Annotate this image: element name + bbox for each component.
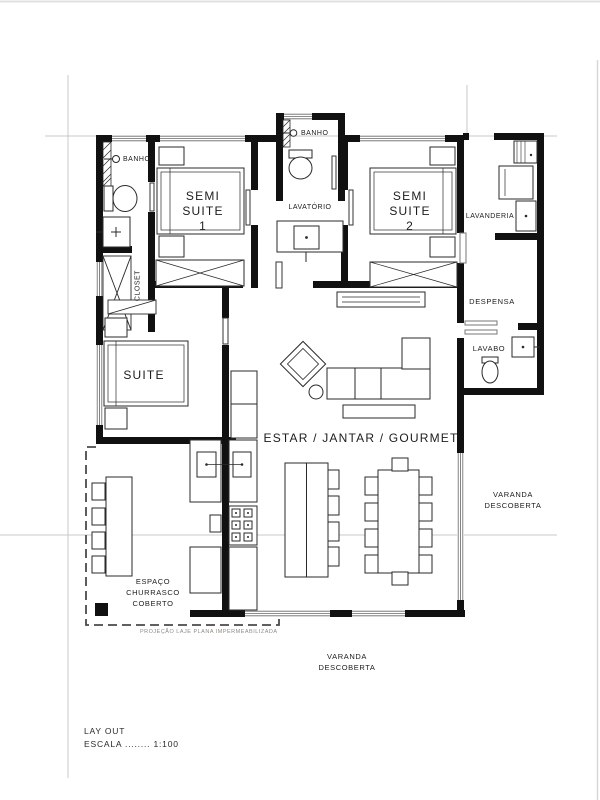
room-label-estar-jantar-gourmet: ESTAR / JANTAR / GOURMET	[261, 431, 461, 446]
washing-machine-icon	[499, 166, 533, 199]
chair-icon	[365, 477, 378, 495]
door-semi-suite-2	[349, 190, 353, 225]
door-banho-middle	[332, 156, 336, 189]
wardrobe-icon	[156, 260, 244, 286]
nightstand-icon	[105, 408, 127, 429]
window-top-semi-suite-1	[160, 135, 245, 142]
annotation-projecao-laje: PROJEÇÃO LAJE PLANA IMPERMEABILIZADA	[140, 629, 278, 636]
nightstand-icon	[159, 147, 184, 165]
wardrobe-icon	[370, 262, 457, 287]
water-tank-icon	[514, 141, 537, 163]
room-label-lavabo: LAVABO	[451, 343, 527, 354]
counter-icon	[190, 547, 221, 593]
window-left-closet	[96, 262, 103, 296]
room-label-despensa: DESPENSA	[454, 296, 530, 307]
chair-icon	[419, 503, 432, 521]
floor-plan-drawing	[0, 0, 600, 800]
window-bottom-1	[245, 610, 330, 617]
toilet-icon	[289, 150, 312, 179]
door-lavabo-leaf-1	[465, 321, 497, 325]
sofa-icon	[327, 338, 430, 399]
nightstand-icon	[105, 318, 127, 337]
dining-table-set	[365, 458, 432, 585]
counter-icon	[210, 515, 221, 532]
room-label-varanda-inferior: VARANDA DESCOBERTA	[307, 651, 387, 673]
stool-icon	[328, 470, 339, 489]
room-label-lavatorio: LAVATÓRIO	[272, 203, 348, 212]
stool-icon	[328, 522, 339, 541]
chair-icon	[419, 529, 432, 547]
door-semi-suite-1	[246, 190, 250, 225]
window-left-suite	[96, 345, 103, 425]
chair-icon	[365, 503, 378, 521]
room-label-varanda-direita: VARANDA DESCOBERTA	[473, 489, 553, 511]
window-bottom-2	[352, 610, 405, 617]
chair-icon	[392, 572, 408, 585]
chair-icon	[92, 508, 105, 525]
dining-table-icon	[378, 470, 419, 573]
armchair-icon	[280, 341, 325, 386]
room-label-lavanderia: LAVANDERIA	[460, 212, 520, 221]
page-edge-lines	[0, 2, 600, 800]
chair-icon	[92, 483, 105, 500]
room-label-banho-middle: BANHO	[301, 129, 341, 138]
kitchen-island	[285, 463, 339, 577]
sideboard-icon	[337, 292, 425, 307]
door-hall	[276, 262, 282, 288]
chair-icon	[365, 529, 378, 547]
window-banho-middle	[284, 113, 312, 120]
counter-icon	[229, 547, 257, 610]
room-label-banho-top-left: BANHO	[123, 155, 159, 164]
door-banho-top-left	[150, 183, 154, 211]
room-label-suite: SUITE	[106, 368, 182, 383]
toilet-icon	[104, 186, 137, 212]
room-label-espaco-churrasco: ESPAÇO CHURRASCO COBERTO	[113, 576, 193, 609]
stool-icon	[328, 547, 339, 566]
room-label-semi-suite-2: SEMI SUITE 2	[372, 189, 448, 234]
nightstand-icon	[430, 147, 455, 165]
chair-icon	[92, 556, 105, 573]
chair-icon	[365, 555, 378, 573]
chair-icon	[392, 458, 408, 471]
side-table-icon	[309, 385, 323, 399]
floor-plan-page: BANHO SEMI SUITE 1 BANHO SEMI SUITE 2 LA…	[0, 0, 600, 800]
door-despensa	[460, 233, 466, 263]
living-room-furniture	[231, 292, 430, 438]
chair-icon	[419, 555, 432, 573]
lavatorio-cabinet	[277, 221, 343, 262]
nightstand-icon	[430, 237, 455, 257]
stool-icon	[328, 496, 339, 515]
churrasco-table-set	[92, 477, 132, 576]
room-label-semi-suite-1: SEMI SUITE 1	[165, 189, 241, 234]
door-lavabo-leaf-2	[465, 330, 497, 334]
chair-icon	[92, 532, 105, 549]
drawing-title: LAY OUT	[84, 726, 125, 737]
room-label-closet: CLOSET	[133, 258, 142, 314]
window-top-banho	[112, 135, 146, 142]
nightstand-icon	[159, 236, 184, 257]
toilet-icon	[482, 357, 498, 383]
window-top-semi-suite-2	[360, 135, 445, 142]
coffee-table-icon	[343, 405, 415, 418]
door-suite	[223, 318, 228, 344]
stove-icon	[229, 506, 257, 545]
window-right-living	[457, 453, 464, 600]
tall-cabinet-icon	[231, 371, 257, 438]
shower-hatch	[103, 142, 111, 186]
table-icon	[106, 477, 132, 576]
drawing-scale: ESCALA ........ 1:100	[84, 739, 179, 750]
chair-icon	[419, 477, 432, 495]
